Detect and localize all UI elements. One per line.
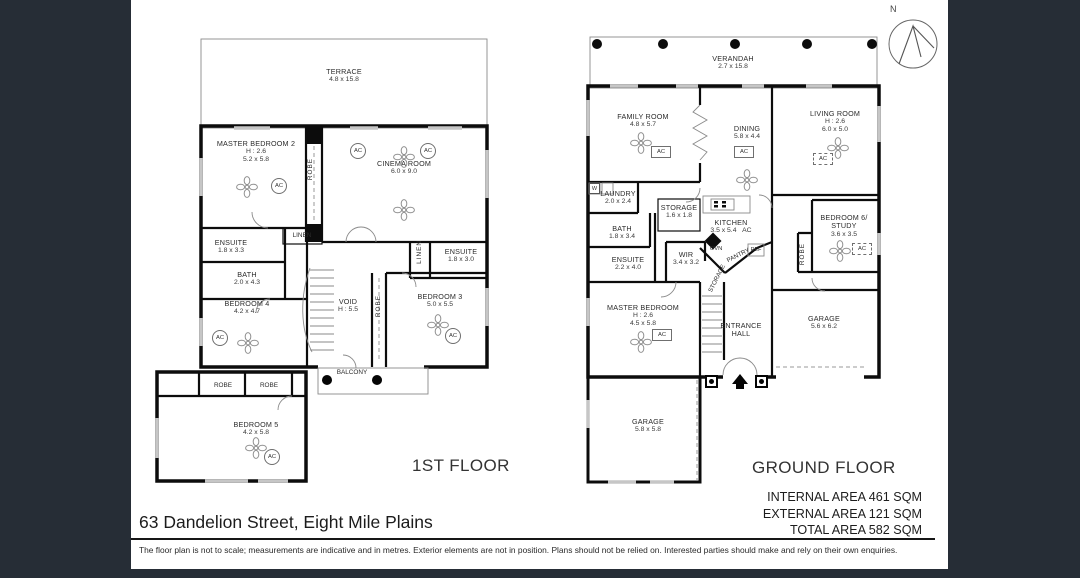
room-terrace: TERRACE 4.8 x 15.8 xyxy=(326,68,362,84)
room-garage-rear: GARAGE 5.6 x 6.2 xyxy=(808,315,840,331)
ac-icon: AC xyxy=(734,146,754,158)
robe-label-vertical: ROBE xyxy=(375,295,382,317)
entry-column xyxy=(755,375,768,388)
stairs-treads xyxy=(310,270,334,350)
first-floor-title: 1ST FLOOR xyxy=(412,456,510,476)
room-ensuite-gf: ENSUITE 2.2 x 4.0 xyxy=(612,256,645,272)
ground-floor-title: GROUND FLOOR xyxy=(752,458,896,478)
room-master-bedroom-2: MASTER BEDROOM 2 H : 2.6 5.2 x 5.8 xyxy=(217,140,295,164)
entry-doors xyxy=(723,358,757,375)
linen-label: LINEN xyxy=(293,232,312,239)
ac-icon: AC xyxy=(271,178,287,194)
ac-icon: AC xyxy=(420,143,436,159)
room-bedroom-4: BEDROOM 4 4.2 x 4.7 xyxy=(225,300,270,316)
room-bedroom-6-study: BEDROOM 6/ STUDY 3.6 x 3.5 xyxy=(820,214,867,239)
ac-icon: AC xyxy=(212,330,228,346)
property-address: 63 Dandelion Street, Eight Mile Plains xyxy=(139,512,433,533)
ceiling-fan-icon xyxy=(630,132,652,154)
linen-label-vertical: LINEN xyxy=(416,240,423,264)
ceiling-fan-icon xyxy=(630,331,652,353)
ac-icon: AC xyxy=(264,449,280,465)
ac-label: AC xyxy=(742,227,751,234)
ac-icon: AC xyxy=(813,153,833,165)
ceiling-fan-icon xyxy=(237,332,259,354)
ac-icon: AC xyxy=(350,143,366,159)
zigzag-wall xyxy=(693,105,707,160)
ground-stairs-treads xyxy=(702,296,722,352)
disclaimer-text: The floor plan is not to scale; measurem… xyxy=(139,545,897,555)
room-garage-front: GARAGE 5.8 x 5.8 xyxy=(632,418,664,434)
room-ensuite-right: ENSUITE 1.8 x 3.0 xyxy=(445,248,478,264)
ceiling-fan-icon xyxy=(393,146,415,168)
cooktop-burners xyxy=(714,201,726,208)
ac-icon: AC xyxy=(652,329,672,341)
robe-label: ROBE xyxy=(260,382,278,389)
room-bath-ff: BATH 2.0 x 4.3 xyxy=(234,271,260,287)
footer-divider xyxy=(131,538,935,540)
robe-label: ROBE xyxy=(214,382,232,389)
compass-icon xyxy=(884,10,944,74)
robe-nib-top xyxy=(305,126,323,144)
entry-arrow-icon xyxy=(731,374,749,390)
first-floor-inner-walls xyxy=(157,126,487,396)
room-bedroom-5: BEDROOM 5 4.2 x 5.8 xyxy=(234,421,279,437)
right-frame-bar xyxy=(948,0,1080,578)
floorplan-page: TERRACE 4.8 x 15.8 MASTER BEDROOM 2 H : … xyxy=(0,0,1080,578)
room-ensuite-left: ENSUITE 1.8 x 3.3 xyxy=(215,239,248,255)
internal-area: INTERNAL AREA 461 SQM xyxy=(700,489,922,506)
area-summary: INTERNAL AREA 461 SQM EXTERNAL AREA 121 … xyxy=(700,489,922,539)
room-wir: WIR 3.4 x 3.2 xyxy=(673,251,699,267)
ceiling-fan-icon xyxy=(393,199,415,221)
total-area: TOTAL AREA 582 SQM xyxy=(700,522,922,539)
first-floor-walls xyxy=(150,30,495,490)
verandah-columns xyxy=(592,39,877,49)
washer-icon: W xyxy=(589,183,600,194)
room-entrance-hall: ENTRANCE HALL xyxy=(720,322,761,339)
bottom-frame-bar xyxy=(131,569,948,578)
room-storage: STORAGE 1.6 x 1.8 xyxy=(661,204,697,220)
left-frame-bar xyxy=(0,0,131,578)
room-laundry: LAUNDRY 2.0 x 2.4 xyxy=(600,190,636,206)
ac-icon: AC xyxy=(852,243,872,255)
ac-icon: AC xyxy=(445,328,461,344)
room-master-bedroom: MASTER BEDROOM H : 2.6 4.5 x 5.8 xyxy=(607,304,679,328)
room-kitchen: KITCHEN 3.5 x 5.4 AC xyxy=(710,219,751,235)
oven-label: OVN xyxy=(710,246,723,252)
room-void: VOID H : 5.5 xyxy=(338,298,358,314)
cooktop xyxy=(711,199,734,210)
external-area: EXTERNAL AREA 121 SQM xyxy=(700,506,922,523)
room-dining: DINING 5.8 x 4.4 xyxy=(734,125,760,141)
balcony-column xyxy=(372,375,382,385)
robe-label-vertical: ROBE xyxy=(307,158,314,180)
room-family: FAMILY ROOM 4.8 x 5.7 xyxy=(617,113,668,129)
ceiling-fan-icon xyxy=(736,169,758,191)
room-bedroom-3: BEDROOM 3 5.0 x 5.5 xyxy=(418,293,463,309)
balcony-column xyxy=(322,375,332,385)
ceiling-fan-icon xyxy=(829,240,851,262)
balcony-label: BALCONY xyxy=(337,369,368,376)
fridge-label: REF xyxy=(751,247,762,253)
ac-icon: AC xyxy=(651,146,671,158)
ceiling-fan-icon xyxy=(236,176,258,198)
robe-dashes xyxy=(314,146,379,362)
room-verandah: VERANDAH 2.7 x 15.8 xyxy=(712,55,754,71)
entry-column xyxy=(705,375,718,388)
robe-label-vertical: ROBE xyxy=(799,243,806,265)
room-bath-gf: BATH 1.8 x 3.4 xyxy=(609,225,635,241)
room-living: LIVING ROOM H : 2.6 6.0 x 5.0 xyxy=(810,110,860,134)
